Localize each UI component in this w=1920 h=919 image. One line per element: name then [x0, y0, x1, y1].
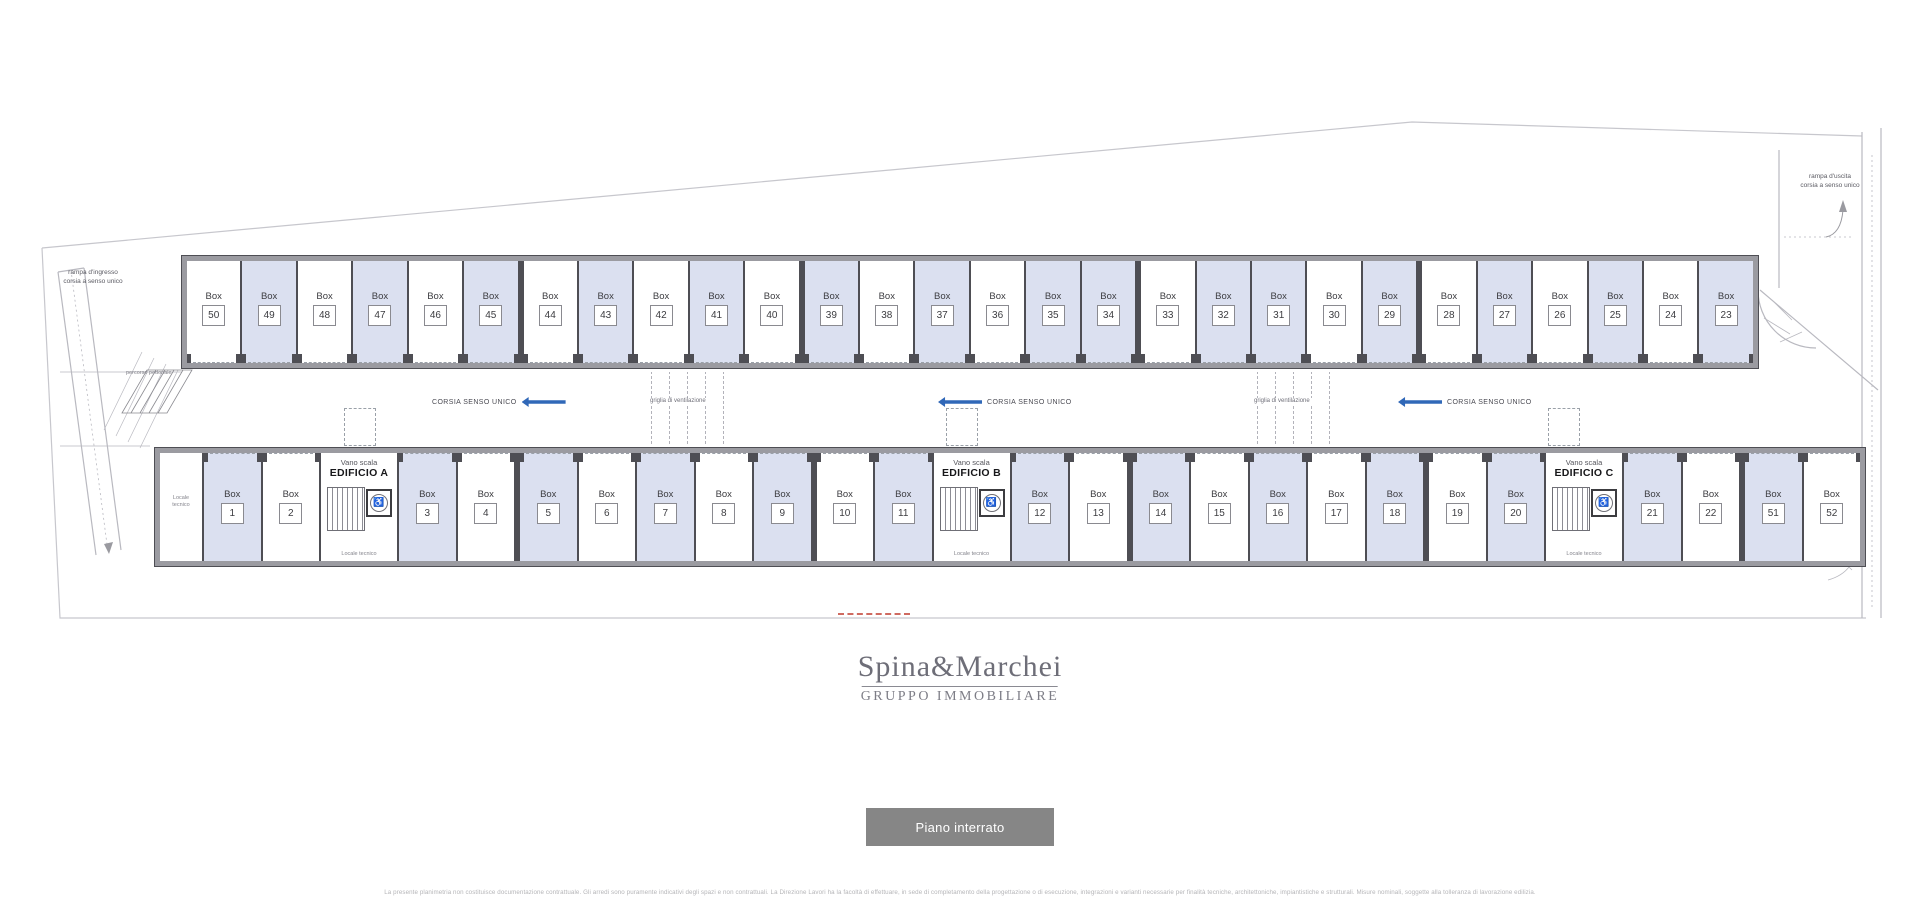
box-label: Box46 — [409, 291, 462, 326]
garage-box-2[interactable]: Box2 — [263, 453, 322, 561]
box-word: Box — [817, 489, 874, 500]
box-number: 52 — [1820, 503, 1843, 524]
box-label: Box33 — [1141, 291, 1194, 326]
garage-box-51[interactable]: Box51 — [1741, 453, 1804, 561]
vent-shaft — [946, 408, 978, 446]
garage-box-7[interactable]: Box7 — [637, 453, 696, 561]
box-word: Box — [263, 489, 320, 500]
box-label: Box42 — [634, 291, 687, 326]
garage-box-33[interactable]: Box33 — [1137, 261, 1196, 363]
garage-box-22[interactable]: Box22 — [1683, 453, 1742, 561]
garage-box-17[interactable]: Box17 — [1308, 453, 1367, 561]
garage-box-43[interactable]: Box43 — [579, 261, 634, 363]
box-number: 47 — [368, 305, 391, 326]
elevator-icon: ♿ — [1591, 489, 1617, 517]
vano-scala-label: Vano scala — [321, 458, 397, 467]
box-word: Box — [1683, 489, 1740, 500]
box-label: Box21 — [1624, 489, 1681, 524]
box-label: Box11 — [875, 489, 932, 524]
tech-room-label: Locale tecnico — [1546, 551, 1622, 557]
building-name: EDIFICIO C — [1546, 467, 1622, 479]
box-label: Box36 — [971, 291, 1024, 326]
box-word: Box — [579, 489, 636, 500]
ventilation-grid-label: griglia di ventilazione — [648, 398, 708, 404]
box-word: Box — [1589, 291, 1642, 302]
disclaimer-text: La presente planimetria non costituisce … — [0, 889, 1920, 896]
tech-room-label: Locale tecnico — [934, 551, 1010, 557]
entry-ramp-label: rampa d'ingresso corsia a senso unico — [28, 268, 158, 286]
garage-box-26[interactable]: Box26 — [1533, 261, 1588, 363]
box-number: 11 — [892, 503, 915, 524]
box-word: Box — [464, 291, 517, 302]
box-word: Box — [1252, 291, 1305, 302]
box-word: Box — [1026, 291, 1079, 302]
box-label: Box49 — [242, 291, 295, 326]
garage-box-42[interactable]: Box42 — [634, 261, 689, 363]
box-number: 45 — [479, 305, 502, 326]
box-label: Box50 — [187, 291, 240, 326]
box-number: 15 — [1208, 503, 1231, 524]
box-label: Box17 — [1308, 489, 1365, 524]
garage-box-4[interactable]: Box4 — [458, 453, 517, 561]
box-label: Box26 — [1533, 291, 1586, 326]
elevator-icon: ♿ — [979, 489, 1005, 517]
box-number: 48 — [313, 305, 336, 326]
box-number: 34 — [1097, 305, 1120, 326]
building-name: EDIFICIO A — [321, 467, 397, 479]
box-number: 18 — [1383, 503, 1406, 524]
left-arrow-icon — [1398, 397, 1442, 407]
box-number: 36 — [986, 305, 1009, 326]
box-word: Box — [1082, 291, 1135, 302]
garage-box-46[interactable]: Box46 — [409, 261, 464, 363]
red-boundary-line — [838, 613, 910, 615]
entry-ramp-label-line2: corsia a senso unico — [28, 277, 158, 286]
box-label: Box6 — [579, 489, 636, 524]
box-label: Box20 — [1488, 489, 1545, 524]
box-number: 3 — [416, 503, 439, 524]
box-word: Box — [1699, 291, 1752, 302]
garage-box-16[interactable]: Box16 — [1250, 453, 1309, 561]
box-label: Box25 — [1589, 291, 1642, 326]
box-label: Box7 — [637, 489, 694, 524]
garage-box-11[interactable]: Box11 — [875, 453, 934, 561]
box-number: 40 — [760, 305, 783, 326]
box-label: Box30 — [1307, 291, 1360, 326]
box-number: 13 — [1087, 503, 1110, 524]
box-label: Box22 — [1683, 489, 1740, 524]
box-number: 1 — [221, 503, 244, 524]
left-arrow-icon — [522, 397, 566, 407]
box-word: Box — [745, 291, 798, 302]
tech-room: Locale tecnico — [160, 453, 204, 561]
box-word: Box — [915, 291, 968, 302]
garage-box-52[interactable]: Box52 — [1804, 453, 1861, 561]
box-number: 7 — [654, 503, 677, 524]
box-number: 33 — [1156, 305, 1179, 326]
box-word: Box — [1804, 489, 1861, 500]
box-number: 30 — [1323, 305, 1346, 326]
box-number: 14 — [1149, 503, 1172, 524]
one-way-lane-label: CORSIA SENSO UNICO — [1398, 397, 1532, 407]
vent-shaft — [344, 408, 376, 446]
pedestrian-path-label: percorso pedonale — [126, 370, 172, 376]
garage-box-1[interactable]: Box1 — [204, 453, 263, 561]
ventilation-grid-label: griglia di ventilazione — [1252, 398, 1312, 404]
box-word: Box — [1133, 489, 1190, 500]
stairwell-a: Vano scalaEDIFICIO A♿Locale tecnico — [321, 453, 399, 561]
box-word: Box — [696, 489, 753, 500]
box-word: Box — [1488, 489, 1545, 500]
stairs-icon — [940, 487, 978, 531]
box-label: Box2 — [263, 489, 320, 524]
box-word: Box — [1191, 489, 1248, 500]
box-word: Box — [1367, 489, 1424, 500]
garage-box-37[interactable]: Box37 — [915, 261, 970, 363]
box-word: Box — [458, 489, 515, 500]
garage-box-18[interactable]: Box18 — [1367, 453, 1426, 561]
garage-box-5[interactable]: Box5 — [516, 453, 579, 561]
box-number: 31 — [1267, 305, 1290, 326]
ventilation-grid-zone — [634, 372, 726, 446]
box-word: Box — [1307, 291, 1360, 302]
box-label: Box13 — [1070, 489, 1127, 524]
box-word: Box — [971, 291, 1024, 302]
garage-box-44[interactable]: Box44 — [520, 261, 579, 363]
exit-ramp-label: rampa d'uscita corsia a senso unico — [1770, 172, 1890, 190]
box-word: Box — [353, 291, 406, 302]
box-label: Box39 — [805, 291, 858, 326]
box-label: Box18 — [1367, 489, 1424, 524]
garage-box-20[interactable]: Box20 — [1488, 453, 1547, 561]
one-way-lane-text: CORSIA SENSO UNICO — [1447, 399, 1532, 406]
garage-box-49[interactable]: Box49 — [242, 261, 297, 363]
box-label: Box28 — [1422, 291, 1475, 326]
box-number: 21 — [1641, 503, 1664, 524]
garage-box-50[interactable]: Box50 — [187, 261, 242, 363]
entry-ramp-label-line1: rampa d'ingresso — [28, 268, 158, 277]
box-number: 16 — [1266, 503, 1289, 524]
box-word: Box — [1478, 291, 1531, 302]
garage-box-35[interactable]: Box35 — [1026, 261, 1081, 363]
one-way-lane-text: CORSIA SENSO UNICO — [432, 399, 517, 406]
box-number: 5 — [537, 503, 560, 524]
floor-selector-button[interactable]: Piano interrato — [866, 808, 1054, 846]
garage-box-12[interactable]: Box12 — [1012, 453, 1071, 561]
box-label: Box27 — [1478, 291, 1531, 326]
box-word: Box — [1308, 489, 1365, 500]
logo-divider — [862, 686, 1058, 687]
box-word: Box — [690, 291, 743, 302]
vano-scala-label: Vano scala — [934, 458, 1010, 467]
garage-box-9[interactable]: Box9 — [754, 453, 813, 561]
wheelchair-icon: ♿ — [370, 494, 388, 512]
left-arrow-icon — [938, 397, 982, 407]
box-label: Box4 — [458, 489, 515, 524]
box-label: Box9 — [754, 489, 811, 524]
vent-shaft — [1548, 408, 1580, 446]
box-number: 29 — [1378, 305, 1401, 326]
box-number: 22 — [1699, 503, 1722, 524]
garage-box-30[interactable]: Box30 — [1307, 261, 1362, 363]
garage-box-36[interactable]: Box36 — [971, 261, 1026, 363]
box-label: Box19 — [1429, 489, 1486, 524]
box-label: Box12 — [1012, 489, 1069, 524]
box-label: Box1 — [204, 489, 261, 524]
box-number: 9 — [771, 503, 794, 524]
box-number: 44 — [539, 305, 562, 326]
box-number: 32 — [1212, 305, 1235, 326]
box-number: 27 — [1493, 305, 1516, 326]
box-word: Box — [1197, 291, 1250, 302]
box-number: 4 — [474, 503, 497, 524]
box-word: Box — [204, 489, 261, 500]
box-label: Box35 — [1026, 291, 1079, 326]
box-word: Box — [524, 291, 577, 302]
one-way-lane-label: CORSIA SENSO UNICO — [938, 397, 1072, 407]
box-number: 10 — [833, 503, 856, 524]
box-number: 51 — [1762, 503, 1785, 524]
garage-box-19[interactable]: Box19 — [1425, 453, 1488, 561]
box-number: 24 — [1659, 305, 1682, 326]
garage-box-39[interactable]: Box39 — [801, 261, 860, 363]
box-word: Box — [1141, 291, 1194, 302]
garage-box-13[interactable]: Box13 — [1070, 453, 1129, 561]
box-label: Box37 — [915, 291, 968, 326]
garage-box-28[interactable]: Box28 — [1418, 261, 1477, 363]
box-word: Box — [1070, 489, 1127, 500]
box-word: Box — [860, 291, 913, 302]
box-label: Box44 — [524, 291, 577, 326]
garage-box-14[interactable]: Box14 — [1129, 453, 1192, 561]
box-number: 17 — [1325, 503, 1348, 524]
box-label: Box29 — [1363, 291, 1416, 326]
box-number: 28 — [1437, 305, 1460, 326]
logo-name: Spina&Marchei — [858, 650, 1063, 684]
box-label: Box48 — [298, 291, 351, 326]
tech-room-label: Locale tecnico — [321, 551, 397, 557]
box-word: Box — [1422, 291, 1475, 302]
box-word: Box — [187, 291, 240, 302]
box-label: Box43 — [579, 291, 632, 326]
box-number: 12 — [1028, 503, 1051, 524]
box-word: Box — [1644, 291, 1697, 302]
exit-ramp-label-line1: rampa d'uscita — [1770, 172, 1890, 181]
garage-box-3[interactable]: Box3 — [399, 453, 458, 561]
box-label: Box40 — [745, 291, 798, 326]
box-word: Box — [1363, 291, 1416, 302]
box-word: Box — [1429, 489, 1486, 500]
one-way-lane-label: CORSIA SENSO UNICO — [432, 397, 566, 407]
box-number: 43 — [594, 305, 617, 326]
box-label: Box3 — [399, 489, 456, 524]
stairwell-c: Vano scalaEDIFICIO C♿Locale tecnico — [1546, 453, 1624, 561]
box-word: Box — [634, 291, 687, 302]
box-word: Box — [1624, 489, 1681, 500]
box-word: Box — [298, 291, 351, 302]
box-word: Box — [1745, 489, 1802, 500]
stairs-icon — [327, 487, 365, 531]
box-number: 35 — [1042, 305, 1065, 326]
one-way-lane-text: CORSIA SENSO UNICO — [987, 399, 1072, 406]
box-label: Box52 — [1804, 489, 1861, 524]
garage-box-47[interactable]: Box47 — [353, 261, 408, 363]
entry-arrow-head — [104, 542, 113, 554]
box-number: 19 — [1446, 503, 1469, 524]
box-word: Box — [579, 291, 632, 302]
box-label: Box16 — [1250, 489, 1307, 524]
box-word: Box — [805, 291, 858, 302]
box-number: 37 — [931, 305, 954, 326]
box-word: Box — [1250, 489, 1307, 500]
box-label: Box10 — [817, 489, 874, 524]
company-logo: Spina&Marchei GRUPPO IMMOBILIARE — [858, 650, 1063, 705]
box-number: 38 — [875, 305, 898, 326]
box-number: 2 — [279, 503, 302, 524]
box-label: Box34 — [1082, 291, 1135, 326]
garage-box-31[interactable]: Box31 — [1252, 261, 1307, 363]
garage-box-27[interactable]: Box27 — [1478, 261, 1533, 363]
box-label: Box8 — [696, 489, 753, 524]
box-word: Box — [637, 489, 694, 500]
box-label: Box47 — [353, 291, 406, 326]
box-number: 46 — [424, 305, 447, 326]
box-label: Box41 — [690, 291, 743, 326]
box-label: Box24 — [1644, 291, 1697, 326]
box-label: Box51 — [1745, 489, 1802, 524]
garage-box-8[interactable]: Box8 — [696, 453, 755, 561]
exit-ramp-label-line2: corsia a senso unico — [1770, 181, 1890, 190]
exit-arrow-head — [1839, 200, 1847, 212]
box-number: 8 — [712, 503, 735, 524]
box-number: 26 — [1548, 305, 1571, 326]
box-number: 42 — [650, 305, 673, 326]
garage-box-41[interactable]: Box41 — [690, 261, 745, 363]
stairs-icon — [1552, 487, 1590, 531]
box-number: 23 — [1715, 305, 1738, 326]
garage-box-10[interactable]: Box10 — [813, 453, 876, 561]
garage-box-15[interactable]: Box15 — [1191, 453, 1250, 561]
box-word: Box — [242, 291, 295, 302]
box-word: Box — [520, 489, 577, 500]
box-number: 49 — [258, 305, 281, 326]
garage-box-32[interactable]: Box32 — [1197, 261, 1252, 363]
garage-box-34[interactable]: Box34 — [1082, 261, 1137, 363]
garage-box-23[interactable]: Box23 — [1699, 261, 1752, 363]
wheelchair-icon: ♿ — [983, 494, 1001, 512]
garage-row-top: Box50Box49Box48Box47Box46Box45Box44Box43… — [182, 256, 1758, 368]
garage-box-6[interactable]: Box6 — [579, 453, 638, 561]
logo-subtitle: GRUPPO IMMOBILIARE — [858, 689, 1063, 705]
vano-scala-label: Vano scala — [1546, 458, 1622, 467]
garage-box-48[interactable]: Box48 — [298, 261, 353, 363]
box-label: Box32 — [1197, 291, 1250, 326]
stairwell-b: Vano scalaEDIFICIO B♿Locale tecnico — [934, 453, 1012, 561]
pedestrian-hatch — [122, 370, 192, 413]
garage-box-24[interactable]: Box24 — [1644, 261, 1699, 363]
box-number: 25 — [1604, 305, 1627, 326]
box-word: Box — [875, 489, 932, 500]
elevator-icon: ♿ — [366, 489, 392, 517]
box-number: 6 — [595, 503, 618, 524]
box-word: Box — [754, 489, 811, 500]
box-number: 39 — [820, 305, 843, 326]
box-word: Box — [399, 489, 456, 500]
garage-box-45[interactable]: Box45 — [464, 261, 519, 363]
box-label: Box15 — [1191, 489, 1248, 524]
box-label: Box38 — [860, 291, 913, 326]
garage-box-21[interactable]: Box21 — [1624, 453, 1683, 561]
box-word: Box — [409, 291, 462, 302]
box-number: 41 — [705, 305, 728, 326]
box-label: Box45 — [464, 291, 517, 326]
tech-room-label: Locale tecnico — [160, 495, 202, 509]
building-name: EDIFICIO B — [934, 467, 1010, 479]
box-word: Box — [1012, 489, 1069, 500]
box-label: Box23 — [1699, 291, 1752, 326]
box-word: Box — [1533, 291, 1586, 302]
ventilation-grid-zone — [1240, 372, 1340, 446]
garage-box-38[interactable]: Box38 — [860, 261, 915, 363]
box-label: Box5 — [520, 489, 577, 524]
wheelchair-icon: ♿ — [1595, 494, 1613, 512]
box-label: Box14 — [1133, 489, 1190, 524]
box-label: Box31 — [1252, 291, 1305, 326]
box-number: 20 — [1504, 503, 1527, 524]
basement-floor-plan: rampa d'ingresso corsia a senso unico ra… — [0, 0, 1920, 919]
garage-box-29[interactable]: Box29 — [1363, 261, 1418, 363]
page: rampa d'ingresso corsia a senso unico ra… — [0, 0, 1920, 919]
garage-box-25[interactable]: Box25 — [1589, 261, 1644, 363]
garage-row-bottom: Locale tecnicoBox1Box2Vano scalaEDIFICIO… — [155, 448, 1865, 566]
garage-box-40[interactable]: Box40 — [745, 261, 800, 363]
box-number: 50 — [202, 305, 225, 326]
